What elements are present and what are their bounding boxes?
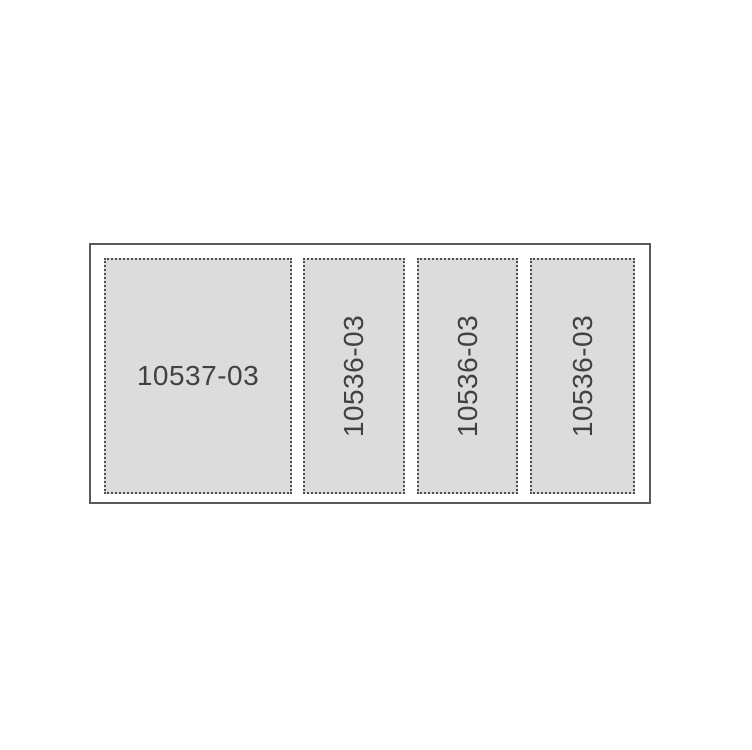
panel-1: 10537-03 <box>104 258 292 494</box>
panel-1-label: 10537-03 <box>137 362 259 390</box>
panel-4-label: 10536-03 <box>569 315 597 437</box>
panel-4: 10536-03 <box>530 258 635 494</box>
panel-3: 10536-03 <box>417 258 518 494</box>
outer-frame: 10537-03 10536-03 10536-03 10536-03 <box>89 243 651 504</box>
diagram-canvas: 10537-03 10536-03 10536-03 10536-03 <box>0 0 752 750</box>
panel-3-label: 10536-03 <box>454 315 482 437</box>
panel-2: 10536-03 <box>303 258 405 494</box>
panel-2-label: 10536-03 <box>340 315 368 437</box>
